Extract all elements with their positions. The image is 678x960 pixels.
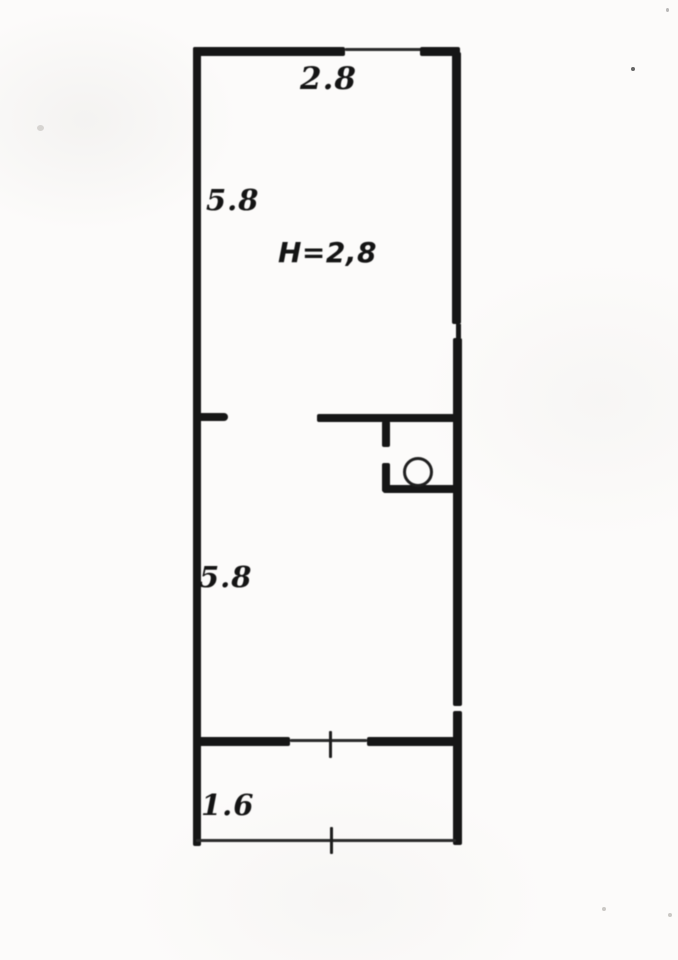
floor-plan-page: 2.8 5.8 H=2,8 5.8 1.6 xyxy=(0,0,678,960)
balcony-wall-left-segment xyxy=(194,737,290,746)
right-wall-upper xyxy=(452,52,461,324)
right-wall-lower xyxy=(453,711,462,845)
top-window-line xyxy=(345,48,422,51)
top-wall-left-segment xyxy=(193,47,345,56)
ceiling-height-label: H=2,8 xyxy=(278,236,377,269)
scan-speck xyxy=(666,8,669,12)
left-wall xyxy=(193,47,201,846)
scan-speck xyxy=(631,67,635,71)
balcony-wall-right-segment xyxy=(367,737,458,746)
scan-speck xyxy=(668,913,672,917)
dimension-balcony-depth: 1.6 xyxy=(201,788,254,822)
right-wall-middle xyxy=(453,338,462,706)
balcony-window-tick xyxy=(329,731,332,758)
scan-speck xyxy=(602,907,606,911)
dimension-top-width: 2.8 xyxy=(300,61,357,97)
plumbing-fixture-icon xyxy=(403,457,433,487)
wc-partition-upper xyxy=(382,421,390,447)
balcony-outer-tick xyxy=(330,827,333,854)
dimension-upper-room-depth: 5.8 xyxy=(206,183,259,217)
scan-speck xyxy=(37,125,44,131)
mid-wall-left-stub xyxy=(194,413,228,421)
floor-plan: 2.8 5.8 H=2,8 5.8 1.6 xyxy=(0,0,678,960)
right-wall-joint xyxy=(456,324,461,338)
dimension-lower-room-depth: 5.8 xyxy=(199,560,252,594)
balcony-outer-line xyxy=(196,839,456,842)
